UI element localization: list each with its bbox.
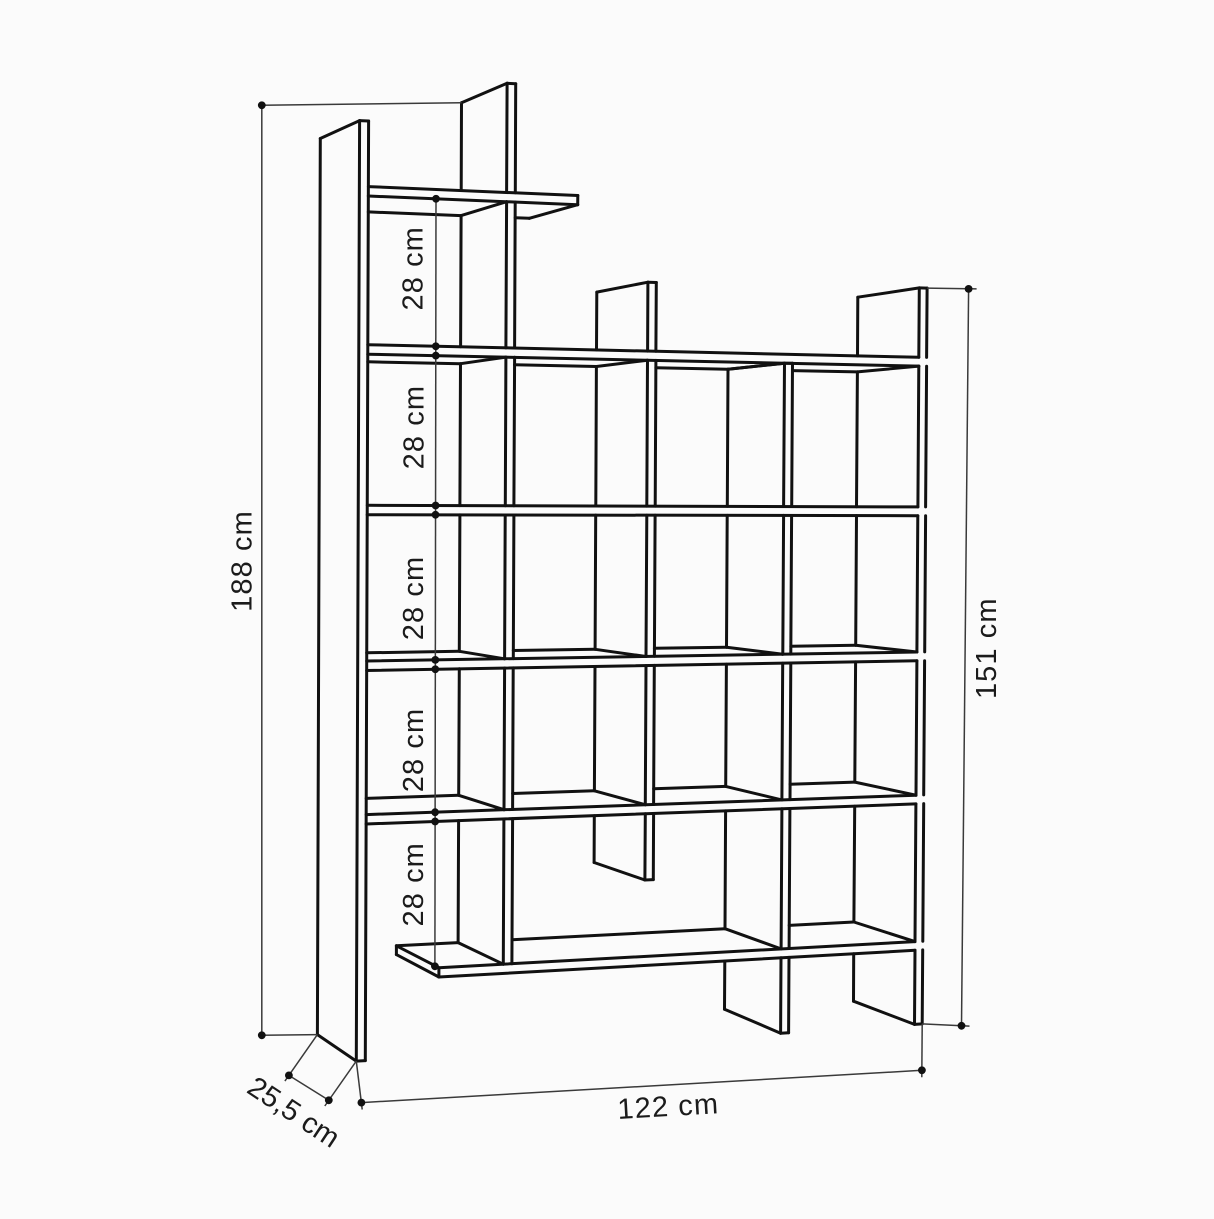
svg-text:28 cm: 28 cm bbox=[398, 556, 430, 640]
svg-text:122 cm: 122 cm bbox=[617, 1088, 720, 1126]
svg-text:151 cm: 151 cm bbox=[971, 597, 1003, 699]
svg-text:28 cm: 28 cm bbox=[398, 842, 430, 926]
svg-text:188 cm: 188 cm bbox=[227, 510, 259, 612]
svg-text:28 cm: 28 cm bbox=[398, 708, 430, 792]
svg-text:28 cm: 28 cm bbox=[398, 226, 430, 310]
svg-text:28 cm: 28 cm bbox=[399, 385, 431, 469]
